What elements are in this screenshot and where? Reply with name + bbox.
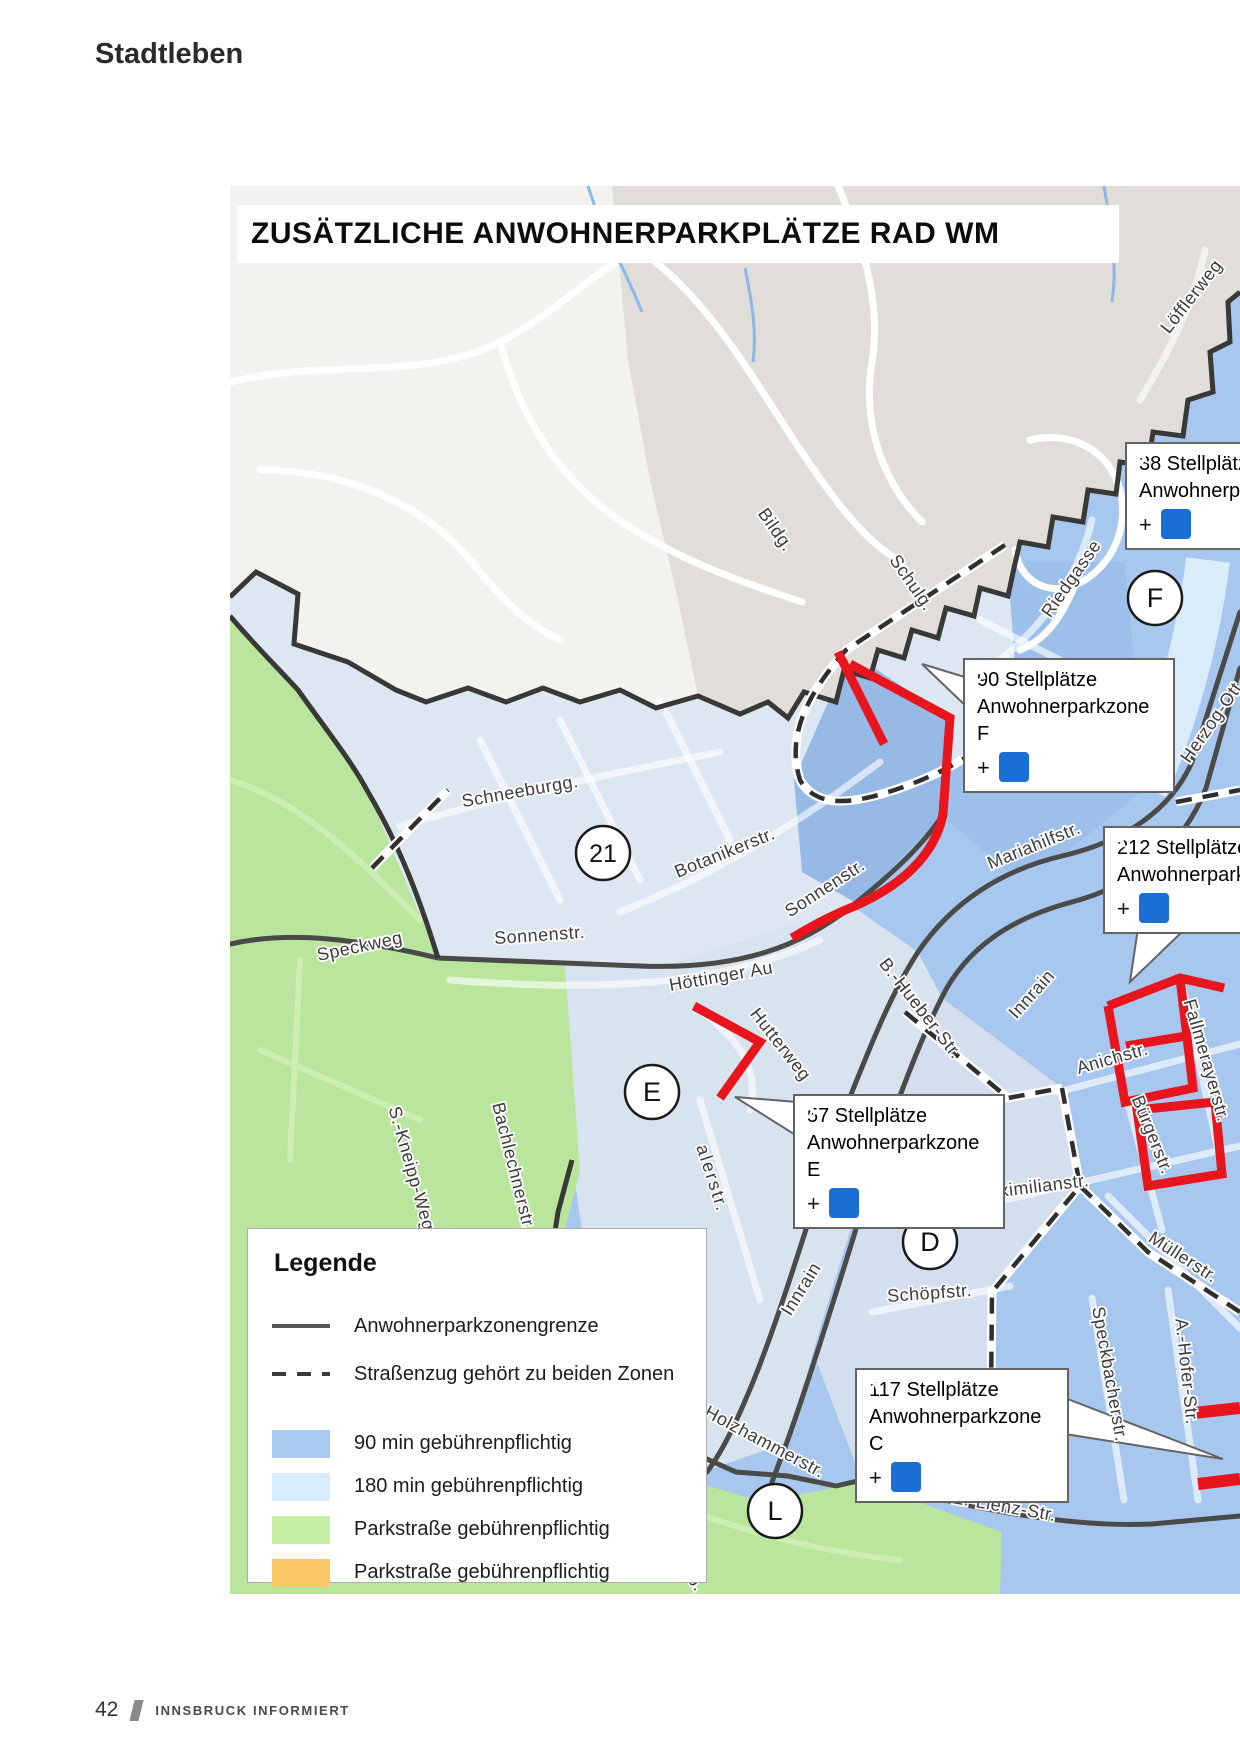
wheelchair-icon xyxy=(795,1096,819,1120)
zone-marker-E: E xyxy=(625,1065,679,1119)
plus-sign: + xyxy=(869,1464,882,1491)
callout-zone-38: 38 StellplätzeAnwohnerparkzone+ xyxy=(1125,442,1240,550)
legend-item: 90 min gebührenpflichtig xyxy=(272,1422,682,1465)
wheelchair-badge xyxy=(999,752,1029,782)
wheelchair-badge xyxy=(1139,893,1169,923)
accessible-parking-row: + xyxy=(1117,892,1240,924)
callout-text: Anwohnerparkzone E xyxy=(807,1130,991,1184)
callout-text: Anwohnerparkzone C xyxy=(869,1404,1055,1458)
callout-zone-e: 57 StellplätzeAnwohnerparkzone E+ xyxy=(793,1094,1005,1229)
slash-icon xyxy=(130,1700,144,1721)
page-title: Stadtleben xyxy=(95,38,243,71)
wheelchair-badge xyxy=(829,1188,859,1218)
callout-text: 212 Stellplätze xyxy=(1117,835,1240,862)
legend-label: Straßenzug gehört zu beiden Zonen xyxy=(354,1363,674,1386)
legend-item: 180 min gebührenpflichtig xyxy=(272,1465,682,1508)
zone-marker-label: 21 xyxy=(589,840,617,868)
legend-swatch-fill xyxy=(272,1430,330,1458)
accessible-parking-row: + xyxy=(807,1187,991,1219)
legend-item: Anwohnerparkzonengrenze xyxy=(272,1302,682,1350)
wheelchair-badge xyxy=(891,1462,921,1492)
callout-text: 90 Stellplätze xyxy=(977,667,1161,694)
callout-text: Anwohnerparkzone F xyxy=(977,694,1161,748)
callout-text: 38 Stellplätze xyxy=(1139,451,1240,478)
callout-zone-212: 212 StellplätzeAnwohnerparkzone+ xyxy=(1103,826,1240,934)
callout-text: Anwohnerparkzone xyxy=(1139,478,1240,505)
callout-text: 57 Stellplätze xyxy=(807,1103,991,1130)
callout-text: 117 Stellplätze xyxy=(869,1377,1055,1404)
legend-item: Parkstraße gebührenpflichtig xyxy=(272,1551,682,1594)
wheelchair-icon xyxy=(1105,828,1129,852)
accessible-parking-row: + xyxy=(977,751,1161,783)
zone-marker-21: 21 xyxy=(576,826,630,880)
legend-swatch-line-solid xyxy=(272,1324,330,1328)
publication-name: INNSBRUCK INFORMIERT xyxy=(155,1703,350,1718)
wheelchair-badge xyxy=(1161,509,1191,539)
zone-marker-F: F xyxy=(1128,571,1182,625)
legend-label: 90 min gebührenpflichtig xyxy=(354,1432,572,1455)
zone-marker-label: L xyxy=(767,1496,782,1526)
plus-sign: + xyxy=(1117,895,1130,922)
callout-zone-c: 117 StellplätzeAnwohnerparkzone C+ xyxy=(855,1368,1069,1503)
plus-sign: + xyxy=(977,754,990,781)
map-title: ZUSÄTZLICHE ANWOHNERPARKPLÄTZE RAD WM xyxy=(237,205,1119,263)
wheelchair-icon xyxy=(965,660,989,684)
legend-swatch-fill xyxy=(272,1516,330,1544)
zone-marker-label: E xyxy=(643,1077,661,1107)
legend-label: Parkstraße gebührenpflichtig xyxy=(354,1561,610,1584)
legend-label: Parkstraße gebührenpflichtig xyxy=(354,1518,610,1541)
legend-label: Anwohnerparkzonengrenze xyxy=(354,1315,599,1338)
accessible-parking-row: + xyxy=(1139,508,1240,540)
zone-marker-label: D xyxy=(920,1227,940,1257)
legend-heading: Legende xyxy=(274,1249,682,1278)
plus-sign: + xyxy=(1139,511,1152,538)
callout-text: Anwohnerparkzone xyxy=(1117,862,1240,889)
page-number: 42 xyxy=(95,1698,118,1722)
legend-label: 180 min gebührenpflichtig xyxy=(354,1475,583,1498)
page-footer: 42 INNSBRUCK INFORMIERT xyxy=(95,1698,350,1722)
legend-item: Straßenzug gehört zu beiden Zonen xyxy=(272,1350,682,1398)
zone-marker-label: F xyxy=(1147,583,1164,613)
legend-swatch-fill xyxy=(272,1559,330,1587)
callout-zone-f: 90 StellplätzeAnwohnerparkzone F+ xyxy=(963,658,1175,793)
legend-item: Parkstraße gebührenpflichtig xyxy=(272,1508,682,1551)
legend-swatch-fill xyxy=(272,1473,330,1501)
parking-zone-map: LöfflerwegBildg.Schulg.RiedgasseHerzog-O… xyxy=(230,186,1240,1594)
accessible-parking-row: + xyxy=(869,1461,1055,1493)
wheelchair-icon xyxy=(857,1370,881,1394)
wheelchair-icon xyxy=(1127,444,1151,468)
plus-sign: + xyxy=(807,1190,820,1217)
legend-items: AnwohnerparkzonengrenzeStraßenzug gehört… xyxy=(272,1302,682,1594)
legend-swatch-line-dashed xyxy=(272,1372,330,1376)
legend: Legende AnwohnerparkzonengrenzeStraßenzu… xyxy=(247,1228,707,1583)
zone-marker-L: L xyxy=(748,1484,802,1538)
